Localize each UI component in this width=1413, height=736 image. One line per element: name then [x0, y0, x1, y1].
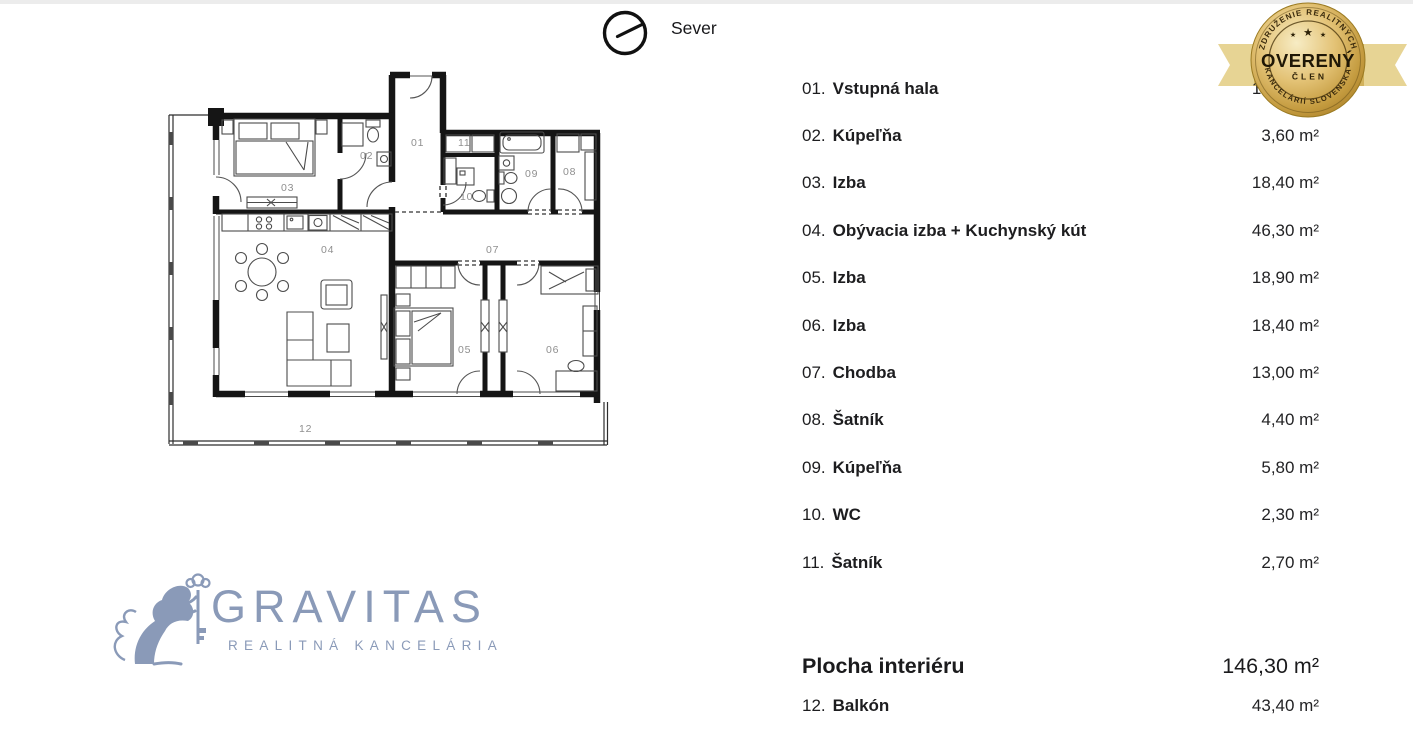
room-number: 03. — [802, 173, 826, 192]
room-row: 04.Obývacia izba + Kuchynský kút 46,30 m… — [802, 207, 1319, 254]
room-area: 46,30 m² — [1252, 221, 1319, 241]
room-number: 08. — [802, 410, 826, 429]
room-number: 12. — [802, 696, 826, 715]
interior-area-label: Plocha interiéru — [802, 654, 965, 679]
interior-area-value: 146,30 m² — [1222, 654, 1319, 679]
room-area: 3,60 m² — [1261, 126, 1319, 146]
lion-key-icon — [115, 575, 210, 665]
room-area: 5,80 m² — [1261, 458, 1319, 478]
balcony-row: 12.Balkón 43,40 m² — [802, 690, 1319, 722]
room-area: 18,40 m² — [1252, 173, 1319, 193]
room-label-12: 12 — [299, 423, 312, 435]
room-name: Izba — [833, 316, 866, 335]
room-row: 07.Chodba 13,00 m² — [802, 349, 1319, 396]
badge-title: OVERENÝ — [1261, 50, 1355, 71]
room-name: Kúpeľňa — [833, 126, 902, 145]
room-label-11: 11 — [458, 137, 471, 149]
room-name: Balkón — [833, 696, 890, 715]
room-area: 18,90 m² — [1252, 268, 1319, 288]
windows — [214, 140, 600, 397]
north-label: Sever — [671, 18, 717, 39]
walls-outer — [210, 75, 600, 403]
room-name: WC — [833, 505, 861, 524]
room-number: 02. — [802, 126, 826, 145]
room-area: 18,40 m² — [1252, 316, 1319, 336]
room-name: Vstupná hala — [833, 79, 939, 98]
agency-logo: GRAVITAS REALITNÁ KANCELÁRIA — [95, 568, 525, 673]
room-row: 03.Izba 18,40 m² — [802, 160, 1319, 207]
room-label-05: 05 — [458, 344, 471, 356]
room-row: 06.Izba 18,40 m² — [802, 302, 1319, 349]
room-name: Izba — [833, 268, 866, 287]
room-row: 11.Šatník 2,70 m² — [802, 539, 1319, 586]
room-label-07: 07 — [486, 244, 499, 256]
room-label-09: 09 — [525, 168, 538, 180]
room-number: 07. — [802, 363, 826, 382]
room-row: 05.Izba 18,90 m² — [802, 255, 1319, 302]
room-name: Šatník — [831, 553, 882, 572]
verified-member-badge: ZDRUŽENIE REALITNÝCH KANCELÁRIÍ SLOVENSK… — [1210, 0, 1413, 125]
floor-plan: 01 02 03 04 05 06 07 08 09 10 11 12 — [160, 55, 615, 455]
north-compass-icon — [598, 8, 652, 58]
room-name: Izba — [833, 173, 866, 192]
room-label-04: 04 — [321, 244, 334, 256]
room-label-03: 03 — [281, 182, 294, 194]
room-number: 09. — [802, 458, 826, 477]
room-label-06: 06 — [546, 344, 559, 356]
room-name: Obývacia izba + Kuchynský kút — [833, 221, 1087, 240]
room-number: 06. — [802, 316, 826, 335]
room-label-08: 08 — [563, 166, 576, 178]
badge-member-label: ČLEN — [1292, 71, 1327, 82]
room-label-10: 10 — [460, 191, 473, 203]
room-name: Šatník — [833, 410, 884, 429]
furniture — [222, 119, 598, 391]
logo-wordmark: GRAVITAS — [211, 581, 488, 632]
room-list: 01.Vstupná hala 12,50 m² 02.Kúpeľňa 3,60… — [802, 65, 1319, 586]
room-row: 09.Kúpeľňa 5,80 m² — [802, 444, 1319, 491]
star-icon: ★ — [1320, 31, 1326, 39]
room-label-01: 01 — [411, 137, 424, 149]
room-row: 08.Šatník 4,40 m² — [802, 397, 1319, 444]
room-number: 11. — [802, 553, 824, 572]
room-name: Chodba — [833, 363, 896, 382]
room-area: 2,70 m² — [1261, 553, 1319, 573]
logo-tagline: REALITNÁ KANCELÁRIA — [228, 638, 503, 653]
room-area: 2,30 m² — [1261, 505, 1319, 525]
badge-seal: ZDRUŽENIE REALITNÝCH KANCELÁRIÍ SLOVENSK… — [1210, 0, 1413, 125]
walls-interior — [216, 116, 600, 394]
room-number: 05. — [802, 268, 826, 287]
room-row: 10.WC 2,30 m² — [802, 492, 1319, 539]
room-area: 43,40 m² — [1252, 696, 1319, 716]
star-icon: ★ — [1303, 27, 1313, 39]
room-number: 04. — [802, 221, 826, 240]
room-number: 10. — [802, 505, 826, 524]
room-name: Kúpeľňa — [833, 458, 902, 477]
star-icon: ★ — [1290, 31, 1296, 39]
room-area: 4,40 m² — [1261, 410, 1319, 430]
room-label-02: 02 — [360, 150, 373, 162]
top-edge-bar — [0, 0, 1413, 4]
room-number: 01. — [802, 79, 826, 98]
room-area: 13,00 m² — [1252, 363, 1319, 383]
summary-section: Plocha interiéru 146,30 m² 12.Balkón 43,… — [802, 648, 1319, 722]
